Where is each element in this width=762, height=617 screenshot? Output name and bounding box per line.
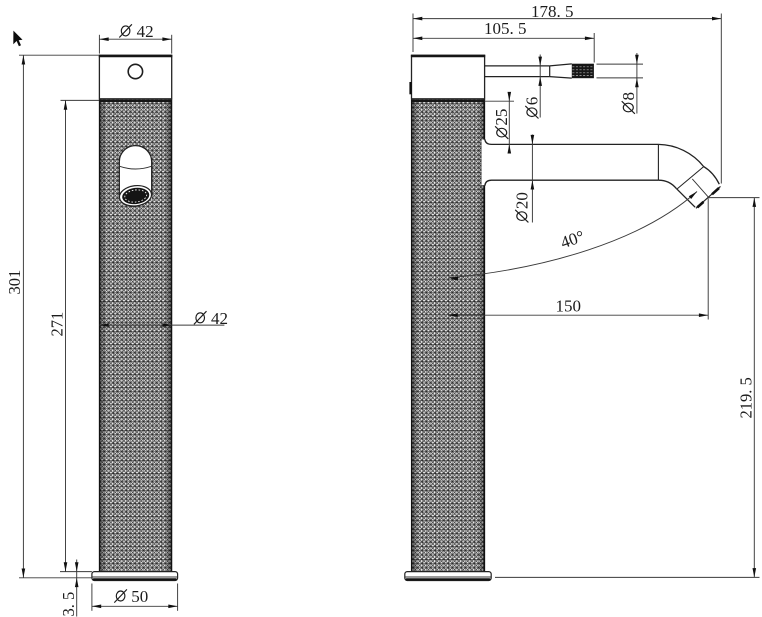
svg-text:178. 5: 178. 5 bbox=[531, 2, 574, 21]
svg-text:6: 6 bbox=[522, 97, 541, 106]
svg-text:3. 5: 3. 5 bbox=[59, 592, 78, 617]
svg-text:219. 5: 219. 5 bbox=[737, 377, 756, 418]
svg-text:301: 301 bbox=[5, 270, 24, 295]
svg-text:271: 271 bbox=[48, 312, 67, 337]
svg-text:105. 5: 105. 5 bbox=[484, 19, 527, 38]
svg-text:8: 8 bbox=[619, 92, 638, 101]
svg-text:150: 150 bbox=[556, 297, 582, 316]
svg-text:42: 42 bbox=[137, 22, 154, 41]
svg-text:50: 50 bbox=[131, 587, 148, 606]
svg-text:42: 42 bbox=[211, 309, 228, 328]
svg-text:25: 25 bbox=[492, 109, 511, 126]
svg-text:20: 20 bbox=[512, 192, 531, 209]
